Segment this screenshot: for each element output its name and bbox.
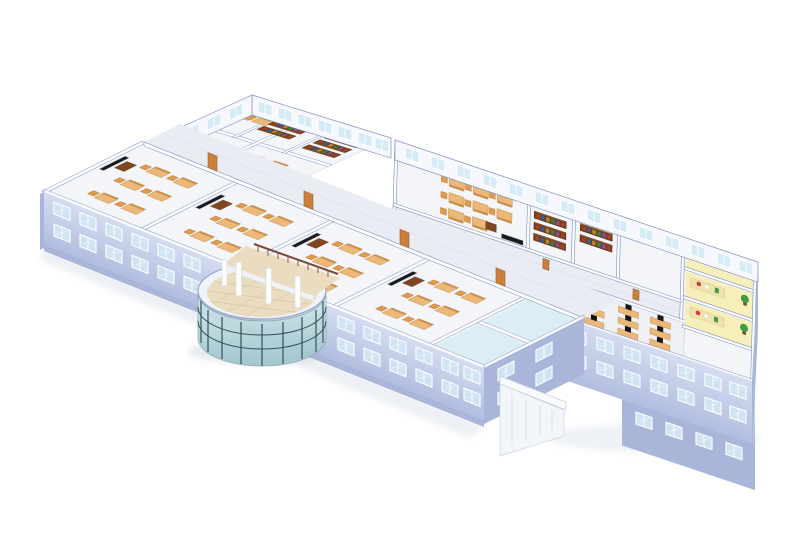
door bbox=[496, 268, 505, 287]
column bbox=[266, 268, 272, 304]
door bbox=[400, 229, 409, 248]
building-3d-cutaway-svg bbox=[0, 0, 800, 550]
column bbox=[236, 262, 242, 296]
door bbox=[208, 153, 217, 172]
column bbox=[295, 276, 301, 308]
door bbox=[304, 191, 313, 210]
building-cutaway-render bbox=[0, 0, 800, 550]
column bbox=[222, 260, 227, 286]
front-wing-west-edge bbox=[40, 192, 44, 250]
